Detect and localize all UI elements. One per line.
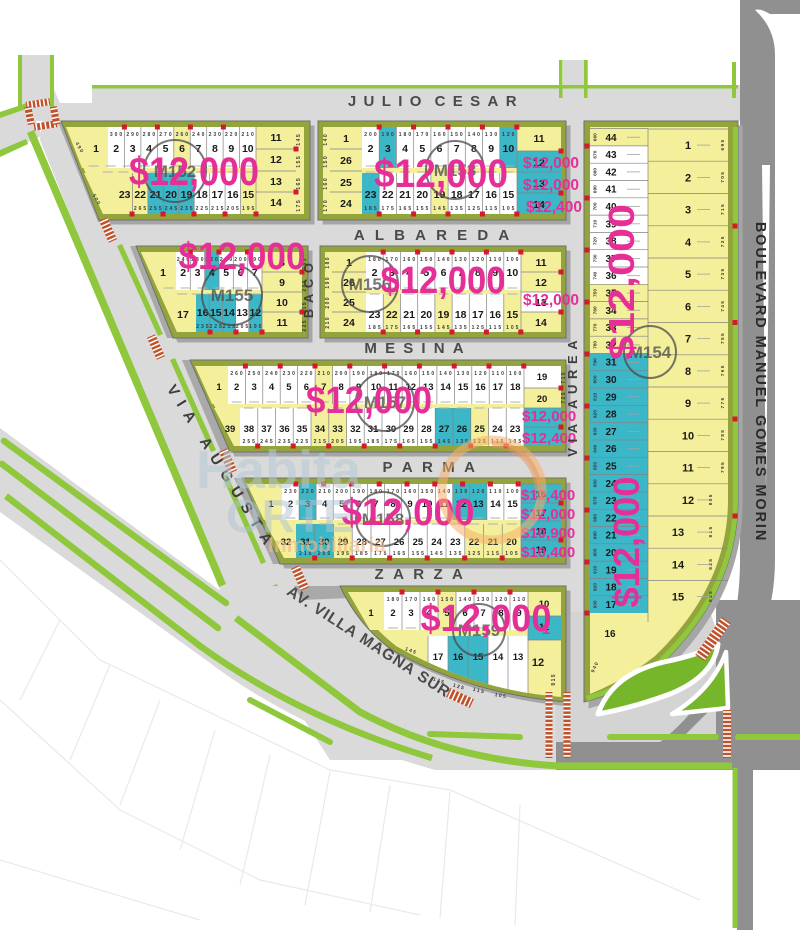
svg-text:1 8 5: 1 8 5 bbox=[364, 206, 377, 212]
svg-text:20: 20 bbox=[537, 394, 548, 405]
svg-text:760: 760 bbox=[593, 306, 599, 314]
svg-text:2 2 0: 2 2 0 bbox=[225, 132, 238, 138]
svg-text:1 9 0: 1 9 0 bbox=[381, 132, 394, 138]
svg-text:1 6 5: 1 6 5 bbox=[402, 439, 415, 445]
svg-text:1 3 0: 1 3 0 bbox=[485, 132, 498, 138]
svg-text:7 0 5: 7 0 5 bbox=[720, 172, 726, 183]
svg-text:$12,000: $12,000 bbox=[523, 177, 579, 194]
svg-text:3 0 0: 3 0 0 bbox=[110, 132, 123, 138]
svg-text:2 4 0: 2 4 0 bbox=[192, 132, 205, 138]
svg-text:25: 25 bbox=[340, 177, 352, 189]
svg-text:27: 27 bbox=[439, 424, 450, 435]
svg-text:900: 900 bbox=[593, 548, 599, 556]
svg-text:1 8 5: 1 8 5 bbox=[368, 325, 381, 331]
svg-text:2 1 5: 2 1 5 bbox=[211, 206, 224, 212]
svg-text:1 8 0: 1 8 0 bbox=[387, 597, 400, 603]
svg-text:17: 17 bbox=[493, 382, 504, 393]
svg-text:8: 8 bbox=[685, 366, 691, 378]
svg-text:24: 24 bbox=[492, 424, 503, 435]
svg-text:14: 14 bbox=[270, 197, 282, 209]
svg-text:850: 850 bbox=[593, 462, 599, 470]
svg-text:39: 39 bbox=[225, 424, 236, 435]
svg-text:1 5 5: 1 5 5 bbox=[420, 325, 433, 331]
svg-text:42: 42 bbox=[605, 167, 617, 178]
svg-text:1 6 0: 1 6 0 bbox=[323, 178, 329, 190]
svg-text:2 1 0: 2 1 0 bbox=[241, 132, 254, 138]
svg-text:2 1 0: 2 1 0 bbox=[317, 371, 330, 377]
svg-text:16: 16 bbox=[489, 309, 501, 321]
svg-text:1 0 5: 1 0 5 bbox=[506, 325, 519, 331]
svg-text:1 8 0: 1 8 0 bbox=[399, 132, 412, 138]
svg-text:14: 14 bbox=[223, 307, 235, 319]
svg-text:1 5 5: 1 5 5 bbox=[420, 439, 433, 445]
svg-text:2 8 0: 2 8 0 bbox=[143, 132, 156, 138]
svg-text:2 9 0: 2 9 0 bbox=[126, 132, 139, 138]
svg-text:M155: M155 bbox=[211, 286, 254, 305]
svg-text:$12,000: $12,000 bbox=[421, 598, 552, 640]
svg-text:34: 34 bbox=[315, 424, 326, 435]
svg-text:1 5 5: 1 5 5 bbox=[296, 156, 302, 168]
svg-text:6 9 5: 6 9 5 bbox=[720, 139, 726, 150]
svg-text:7 2 5: 7 2 5 bbox=[720, 236, 726, 247]
svg-text:2: 2 bbox=[113, 143, 119, 155]
svg-text:1 5 0: 1 5 0 bbox=[422, 371, 435, 377]
svg-text:19: 19 bbox=[537, 372, 548, 383]
svg-text:840: 840 bbox=[593, 444, 599, 452]
svg-text:25: 25 bbox=[413, 537, 424, 548]
svg-text:J U L I O C E S A R: J U L I O C E S A R bbox=[348, 93, 518, 110]
svg-text:1 0 0: 1 0 0 bbox=[506, 257, 519, 263]
svg-text:14: 14 bbox=[672, 559, 685, 571]
svg-text:1 1 0: 1 1 0 bbox=[489, 489, 502, 495]
svg-text:2: 2 bbox=[234, 382, 239, 393]
svg-text:$12,000: $12,000 bbox=[374, 152, 508, 196]
svg-text:2 5 0: 2 5 0 bbox=[248, 371, 261, 377]
svg-text:1 1 5: 1 1 5 bbox=[487, 551, 500, 557]
svg-text:7 5 5: 7 5 5 bbox=[720, 333, 726, 344]
svg-text:1 4 5: 1 4 5 bbox=[433, 206, 446, 212]
svg-text:2 2 5: 2 2 5 bbox=[209, 324, 222, 330]
svg-text:A L B A R E D A: A L B A R E D A bbox=[354, 227, 512, 244]
svg-text:26: 26 bbox=[340, 155, 352, 167]
svg-text:23: 23 bbox=[450, 537, 461, 548]
svg-text:1 7 0: 1 7 0 bbox=[323, 200, 329, 212]
svg-text:$12,000: $12,000 bbox=[606, 477, 647, 608]
svg-text:$12,000: $12,000 bbox=[523, 155, 579, 172]
svg-text:12: 12 bbox=[270, 154, 282, 166]
svg-text:14: 14 bbox=[535, 317, 547, 329]
svg-text:37: 37 bbox=[261, 424, 272, 435]
svg-text:1 1 5: 1 1 5 bbox=[489, 325, 502, 331]
svg-text:33: 33 bbox=[332, 424, 343, 435]
svg-text:1 7 5: 1 7 5 bbox=[385, 325, 398, 331]
svg-text:2 0 5: 2 0 5 bbox=[226, 206, 239, 212]
svg-text:25: 25 bbox=[474, 424, 485, 435]
svg-text:11: 11 bbox=[270, 132, 281, 144]
svg-text:9: 9 bbox=[685, 398, 691, 410]
svg-text:750: 750 bbox=[593, 289, 599, 297]
svg-text:32: 32 bbox=[350, 424, 361, 435]
svg-text:720: 720 bbox=[593, 237, 599, 245]
svg-text:1 7 0: 1 7 0 bbox=[405, 597, 418, 603]
svg-text:1 2 0: 1 2 0 bbox=[502, 132, 515, 138]
svg-text:11: 11 bbox=[682, 463, 694, 475]
svg-text:1 1 5: 1 1 5 bbox=[485, 206, 498, 212]
svg-text:6: 6 bbox=[685, 301, 691, 313]
svg-text:3: 3 bbox=[408, 608, 413, 619]
svg-text:1 5 5: 1 5 5 bbox=[416, 206, 429, 212]
svg-text:1 3 5: 1 3 5 bbox=[449, 551, 462, 557]
svg-text:2: 2 bbox=[368, 143, 374, 155]
svg-text:890: 890 bbox=[593, 531, 599, 539]
svg-text:1 5 5: 1 5 5 bbox=[412, 551, 425, 557]
svg-text:7 3 5: 7 3 5 bbox=[720, 268, 726, 279]
svg-text:17: 17 bbox=[433, 652, 444, 663]
svg-text:1 9 0: 1 9 0 bbox=[325, 277, 331, 288]
svg-text:15: 15 bbox=[672, 592, 684, 604]
svg-text:15: 15 bbox=[507, 499, 518, 510]
svg-text:7 1 5: 7 1 5 bbox=[720, 204, 726, 215]
svg-text:20: 20 bbox=[420, 309, 432, 321]
svg-text:1 6 5: 1 6 5 bbox=[399, 206, 412, 212]
svg-text:B A C O: B A C O bbox=[301, 262, 316, 318]
svg-text:26: 26 bbox=[457, 424, 468, 435]
svg-text:870: 870 bbox=[593, 496, 599, 504]
svg-text:43: 43 bbox=[605, 150, 617, 161]
svg-text:7 4 5: 7 4 5 bbox=[720, 301, 726, 312]
svg-text:7 8 5: 7 8 5 bbox=[720, 430, 726, 441]
svg-text:2 2 0: 2 2 0 bbox=[300, 371, 313, 377]
svg-text:29: 29 bbox=[605, 392, 617, 403]
svg-text:18: 18 bbox=[510, 382, 521, 393]
svg-text:$12,400: $12,400 bbox=[526, 199, 582, 216]
svg-text:15: 15 bbox=[458, 382, 469, 393]
svg-text:21: 21 bbox=[403, 309, 415, 321]
svg-text:17: 17 bbox=[472, 309, 484, 321]
svg-text:660: 660 bbox=[593, 133, 599, 141]
svg-text:2 4 0: 2 4 0 bbox=[265, 371, 278, 377]
svg-text:24: 24 bbox=[343, 317, 355, 329]
svg-text:11: 11 bbox=[533, 133, 544, 145]
svg-text:$12,000: $12,000 bbox=[179, 236, 306, 278]
svg-text:1 8 5: 1 8 5 bbox=[367, 439, 380, 445]
svg-text:1 6 5: 1 6 5 bbox=[393, 551, 406, 557]
svg-text:1 7 5: 1 7 5 bbox=[296, 200, 302, 212]
svg-text:17: 17 bbox=[177, 309, 189, 321]
svg-text:1 3 5: 1 3 5 bbox=[450, 206, 463, 212]
svg-text:1 6 5: 1 6 5 bbox=[296, 178, 302, 190]
svg-text:2 4 5: 2 4 5 bbox=[165, 206, 178, 212]
svg-text:2: 2 bbox=[685, 172, 691, 184]
svg-text:810: 810 bbox=[593, 392, 599, 400]
svg-text:860: 860 bbox=[593, 479, 599, 487]
svg-text:2 2 5: 2 2 5 bbox=[196, 206, 209, 212]
svg-text:1 5 0: 1 5 0 bbox=[450, 132, 463, 138]
svg-text:1 4 5: 1 4 5 bbox=[296, 134, 302, 146]
svg-text:3: 3 bbox=[251, 382, 256, 393]
svg-text:1 7 5: 1 7 5 bbox=[381, 206, 394, 212]
svg-text:23: 23 bbox=[510, 424, 521, 435]
svg-text:7 9 5: 7 9 5 bbox=[720, 462, 726, 473]
svg-text:1 9 5: 1 9 5 bbox=[242, 206, 255, 212]
svg-text:2 3 0: 2 3 0 bbox=[283, 371, 296, 377]
svg-text:2 0 0: 2 0 0 bbox=[364, 132, 377, 138]
svg-text:1 6 0: 1 6 0 bbox=[433, 132, 446, 138]
svg-text:2 3 0: 2 3 0 bbox=[209, 132, 222, 138]
svg-text:27: 27 bbox=[605, 427, 617, 438]
svg-text:1: 1 bbox=[216, 382, 222, 393]
svg-text:14: 14 bbox=[440, 382, 451, 393]
svg-text:16: 16 bbox=[453, 652, 464, 663]
svg-text:Inmobiliaria: Inmobiliaria bbox=[268, 534, 386, 557]
svg-text:1 4 5: 1 4 5 bbox=[430, 551, 443, 557]
svg-text:16: 16 bbox=[604, 629, 616, 640]
svg-text:BOULEVARD MANUEL GOMES MORIN: BOULEVARD MANUEL GOMES MORIN bbox=[752, 222, 768, 542]
svg-text:29: 29 bbox=[403, 424, 414, 435]
svg-text:2 1 0: 2 1 0 bbox=[325, 317, 331, 328]
svg-text:1 7 5: 1 7 5 bbox=[385, 439, 398, 445]
svg-text:740: 740 bbox=[593, 271, 599, 279]
svg-text:1 4 0: 1 4 0 bbox=[323, 134, 329, 146]
svg-text:11: 11 bbox=[535, 257, 546, 269]
svg-text:910: 910 bbox=[593, 565, 599, 573]
svg-text:920: 920 bbox=[593, 583, 599, 591]
svg-text:M E S I N A: M E S I N A bbox=[364, 340, 465, 357]
svg-text:2 3 5: 2 3 5 bbox=[196, 324, 209, 330]
svg-text:1 2 5: 1 2 5 bbox=[468, 551, 481, 557]
svg-text:2 0 0: 2 0 0 bbox=[335, 371, 348, 377]
svg-text:41: 41 bbox=[605, 185, 617, 196]
svg-text:1 2 5: 1 2 5 bbox=[468, 206, 481, 212]
svg-text:1 5 0: 1 5 0 bbox=[323, 156, 329, 168]
svg-text:13: 13 bbox=[513, 652, 524, 663]
svg-text:2 2 5: 2 2 5 bbox=[302, 320, 308, 331]
svg-text:2 6 0: 2 6 0 bbox=[230, 371, 243, 377]
svg-text:710: 710 bbox=[593, 219, 599, 227]
svg-text:7 6 5: 7 6 5 bbox=[720, 365, 726, 376]
svg-text:7: 7 bbox=[685, 334, 691, 346]
svg-text:5: 5 bbox=[286, 382, 292, 393]
svg-text:$10,400: $10,400 bbox=[521, 544, 575, 561]
svg-text:36: 36 bbox=[279, 424, 290, 435]
svg-text:1 0 5: 1 0 5 bbox=[505, 551, 518, 557]
svg-text:730: 730 bbox=[593, 254, 599, 262]
svg-text:670: 670 bbox=[593, 150, 599, 158]
svg-text:12: 12 bbox=[682, 495, 694, 507]
svg-text:1: 1 bbox=[343, 133, 349, 145]
svg-text:38: 38 bbox=[244, 424, 255, 435]
svg-text:1 6 0: 1 6 0 bbox=[404, 371, 417, 377]
svg-text:44: 44 bbox=[605, 133, 617, 144]
svg-text:14: 14 bbox=[493, 652, 504, 663]
svg-text:1: 1 bbox=[685, 140, 691, 152]
svg-text:2 5 5: 2 5 5 bbox=[149, 206, 162, 212]
svg-text:2 6 5: 2 6 5 bbox=[134, 206, 147, 212]
svg-text:780: 780 bbox=[593, 341, 599, 349]
svg-text:700: 700 bbox=[593, 202, 599, 210]
svg-text:24: 24 bbox=[340, 198, 352, 210]
svg-text:15: 15 bbox=[473, 652, 484, 663]
svg-text:1 9 0: 1 9 0 bbox=[352, 371, 365, 377]
svg-text:10: 10 bbox=[682, 430, 694, 442]
svg-text:2 3 5: 2 3 5 bbox=[180, 206, 193, 212]
svg-text:690: 690 bbox=[593, 185, 599, 193]
svg-text:2: 2 bbox=[390, 608, 395, 619]
svg-text:22: 22 bbox=[386, 309, 398, 321]
svg-text:10: 10 bbox=[276, 297, 288, 309]
svg-text:1 4 0: 1 4 0 bbox=[468, 132, 481, 138]
svg-text:$12,000: $12,000 bbox=[381, 260, 506, 302]
svg-text:1 0 5: 1 0 5 bbox=[502, 206, 515, 212]
svg-text:13: 13 bbox=[473, 499, 484, 510]
svg-text:1 8 0: 1 8 0 bbox=[325, 257, 331, 268]
svg-text:930: 930 bbox=[593, 600, 599, 608]
svg-text:24: 24 bbox=[431, 537, 442, 548]
svg-text:1 2 5: 1 2 5 bbox=[472, 325, 485, 331]
svg-text:28: 28 bbox=[421, 424, 432, 435]
svg-text:1 1 0: 1 1 0 bbox=[492, 371, 505, 377]
svg-text:$12,000: $12,000 bbox=[306, 380, 432, 422]
svg-text:16: 16 bbox=[475, 382, 486, 393]
svg-text:$12,000: $12,000 bbox=[601, 204, 642, 360]
svg-text:1 7 0: 1 7 0 bbox=[416, 132, 429, 138]
svg-text:10: 10 bbox=[507, 267, 519, 279]
svg-text:V I A A U R E A: V I A A U R E A bbox=[565, 339, 580, 456]
svg-text:4: 4 bbox=[269, 382, 275, 393]
svg-text:1 4 5: 1 4 5 bbox=[438, 439, 451, 445]
svg-text:19: 19 bbox=[438, 309, 450, 321]
svg-text:680: 680 bbox=[593, 168, 599, 176]
svg-text:15: 15 bbox=[507, 309, 519, 321]
svg-text:$12,400: $12,400 bbox=[521, 487, 575, 504]
svg-text:1 2 0: 1 2 0 bbox=[474, 371, 487, 377]
svg-text:1 0 0: 1 0 0 bbox=[506, 489, 519, 495]
svg-text:13: 13 bbox=[270, 176, 282, 188]
svg-text:1 4 5: 1 4 5 bbox=[437, 325, 450, 331]
svg-text:14: 14 bbox=[490, 499, 501, 510]
svg-text:9: 9 bbox=[279, 277, 285, 289]
svg-text:790: 790 bbox=[593, 358, 599, 366]
svg-text:2 0 0: 2 0 0 bbox=[325, 297, 331, 308]
svg-text:30: 30 bbox=[605, 375, 617, 386]
svg-text:5: 5 bbox=[685, 269, 691, 281]
svg-text:1: 1 bbox=[93, 143, 99, 155]
svg-text:1 3 5: 1 3 5 bbox=[454, 325, 467, 331]
svg-text:1 6 5: 1 6 5 bbox=[403, 325, 416, 331]
svg-text:12: 12 bbox=[532, 657, 544, 669]
svg-text:1 4 0: 1 4 0 bbox=[439, 371, 452, 377]
svg-text:11: 11 bbox=[276, 317, 287, 329]
svg-text:820: 820 bbox=[593, 410, 599, 418]
svg-text:28: 28 bbox=[605, 410, 617, 421]
svg-text:25: 25 bbox=[605, 462, 617, 473]
svg-text:13: 13 bbox=[236, 307, 248, 319]
svg-text:3: 3 bbox=[685, 205, 691, 217]
svg-text:770: 770 bbox=[593, 323, 599, 331]
svg-text:26: 26 bbox=[605, 444, 617, 455]
svg-text:Z A R Z A: Z A R Z A bbox=[375, 566, 466, 583]
svg-text:2 6 0: 2 6 0 bbox=[176, 132, 189, 138]
svg-text:35: 35 bbox=[297, 424, 308, 435]
svg-text:2 7 0: 2 7 0 bbox=[159, 132, 172, 138]
svg-text:4: 4 bbox=[685, 237, 692, 249]
svg-text:1 9 5: 1 9 5 bbox=[249, 324, 262, 330]
svg-text:18: 18 bbox=[455, 309, 467, 321]
svg-text:P A R M A: P A R M A bbox=[382, 459, 477, 476]
svg-text:$12,000: $12,000 bbox=[523, 292, 579, 309]
svg-text:880: 880 bbox=[593, 514, 599, 522]
svg-text:830: 830 bbox=[593, 427, 599, 435]
svg-text:1: 1 bbox=[160, 267, 166, 279]
svg-text:7 7 5: 7 7 5 bbox=[720, 397, 726, 408]
svg-text:1: 1 bbox=[368, 608, 374, 619]
svg-text:8 1 5: 8 1 5 bbox=[551, 674, 557, 685]
svg-text:12: 12 bbox=[535, 277, 547, 289]
svg-text:13: 13 bbox=[672, 527, 684, 539]
svg-text:1 0 0: 1 0 0 bbox=[509, 371, 522, 377]
svg-text:$12,000: $12,000 bbox=[129, 150, 259, 194]
svg-text:800: 800 bbox=[593, 375, 599, 383]
svg-text:1 3 0: 1 3 0 bbox=[457, 371, 470, 377]
